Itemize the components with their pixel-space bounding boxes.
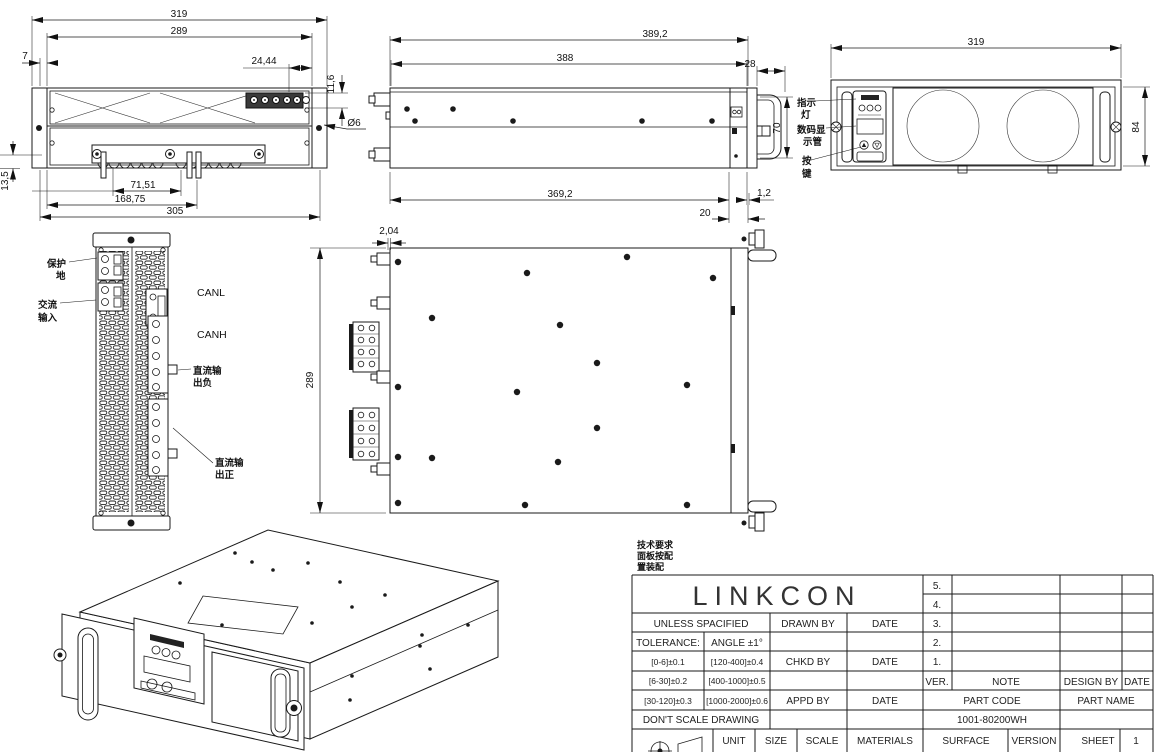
display-module — [853, 91, 886, 162]
dim-label: 389,2 — [642, 29, 667, 40]
dim-label: 13,5 — [0, 171, 11, 191]
tb-tolerance: TOLERANCE: — [636, 638, 700, 649]
ac-terminal-strip — [246, 93, 303, 108]
tb-size: SIZE — [765, 736, 788, 747]
iso-left-handle — [78, 628, 98, 720]
dim-label: 369,2 — [547, 189, 572, 200]
rear-panel-view: 319 289 7 24,44 11,6 Ø6 71,51 168,75 305… — [0, 9, 366, 221]
dim-label: 1,2 — [757, 188, 771, 199]
label-protective-earth: 地 — [56, 270, 66, 282]
ear-hole — [36, 125, 42, 131]
label-protective-earth: 保护 — [46, 258, 66, 270]
tb-dont-scale: DON'T SCALE DRAWING — [643, 715, 760, 726]
label-buttons: 按 — [802, 155, 812, 167]
label-canh: CANH — [197, 329, 227, 341]
tb-angle-tolerance: ANGLE ±1° — [711, 638, 763, 649]
tb-rev-5: 5. — [933, 581, 941, 592]
tb-drawn-by: DRAWN BY — [781, 619, 835, 630]
busbar-prong — [196, 152, 201, 178]
dim-label: 84 — [1131, 121, 1142, 133]
tb-tol-4: [120-400]±0.4 — [711, 657, 764, 667]
tb-rev-4: 4. — [933, 600, 941, 611]
terminal-block-1 — [349, 322, 379, 372]
ac-input-terminal — [98, 283, 123, 311]
tb-rev-3: 3. — [933, 619, 941, 630]
tb-version: VERSION — [1011, 736, 1056, 747]
projection-symbol — [648, 737, 702, 752]
label-canl: CANL — [197, 287, 225, 299]
dim-label: Ø6 — [347, 118, 361, 129]
tb-unless-specified: UNLESS SPACIFIED — [654, 619, 749, 630]
dc-negative-terminal — [148, 316, 168, 393]
dc-positive-terminal — [148, 399, 168, 476]
label-dc-positive: 直流输 — [215, 457, 244, 469]
dim-label: 7 — [22, 51, 28, 62]
tb-appd-by: APPD BY — [786, 696, 830, 707]
tb-ver: VER. — [925, 677, 948, 688]
busbar-prong — [187, 152, 192, 178]
dim-label: 388 — [557, 53, 574, 64]
dim-label: 24,44 — [251, 56, 276, 67]
label-indicator: 灯 — [801, 109, 811, 121]
label-display: 示管 — [803, 136, 823, 148]
thumbscrew-profile — [757, 126, 770, 136]
dim-label: 28 — [744, 59, 756, 70]
tb-part-code-value: 1001-80200WH — [957, 715, 1027, 726]
busbar-prong — [101, 152, 106, 178]
tb-part-name: PART NAME — [1077, 696, 1135, 707]
tb-date: DATE — [1124, 677, 1150, 688]
front-panel-edge — [747, 88, 757, 168]
earth-terminal — [98, 252, 123, 280]
top-front-panel — [731, 248, 748, 513]
tb-rev-1: 1. — [933, 657, 941, 668]
dim-label: 20 — [699, 208, 711, 219]
side-view: 389,2 388 28 70 369,2 1,2 20 — [369, 29, 793, 223]
tb-note: NOTE — [992, 677, 1020, 688]
dim-label: 289 — [171, 26, 188, 37]
label-dc-positive: 出正 — [215, 469, 235, 481]
title-block: LINKCON UNLESS SPACIFIED DRAWN BY DATE T… — [632, 575, 1153, 752]
tb-date: DATE — [872, 696, 898, 707]
tb-tol-6: [1000-2000]±0.6 — [706, 696, 768, 706]
tb-design-by: DESIGN BY — [1064, 677, 1119, 688]
dim-label: 168,75 — [115, 194, 146, 205]
top-body — [390, 248, 731, 513]
label-display: 数码显 — [796, 124, 826, 136]
isometric-view — [54, 530, 498, 750]
iso-right-handle — [271, 669, 290, 737]
tb-scale: SCALE — [806, 736, 839, 747]
dim-label: 11,6 — [326, 74, 337, 93]
note-line: 面板按配 — [637, 550, 673, 562]
note-line: 技术要求 — [637, 539, 674, 551]
front-panel-view: 319 84 指示 灯 数码显 示管 按 键 — [796, 37, 1150, 180]
tb-part-code: PART CODE — [963, 696, 1021, 707]
connector-side-view: 保护 地 交流 输入 CANL CANH 直流输 出负 直流输 出正 — [38, 233, 244, 530]
label-dc-negative: 直流输 — [193, 365, 222, 377]
note-line: 置装配 — [637, 561, 664, 573]
technical-notes: 技术要求 面板按配 置装配 — [637, 539, 674, 573]
label-dc-negative: 出负 — [193, 377, 213, 389]
tb-tol-1: [0-6]±0.1 — [651, 657, 685, 667]
tb-sheet-number: 1 — [1133, 736, 1139, 747]
terminal-block-2 — [349, 408, 379, 460]
tb-sheet: SHEET — [1081, 736, 1114, 747]
label-buttons: 键 — [801, 168, 812, 180]
dim-label: 2,04 — [379, 226, 399, 237]
label-ac-input: 输入 — [38, 312, 58, 324]
dim-label: 70 — [772, 122, 783, 134]
tb-tol-2: [6-30]±0.2 — [649, 676, 687, 686]
dim-label: 319 — [968, 37, 985, 48]
tb-date: DATE — [872, 619, 898, 630]
tb-tol-3: [30-120]±0.3 — [644, 696, 692, 706]
tb-chkd-by: CHKD BY — [786, 657, 831, 668]
top-view: 2,04 289 — [305, 226, 776, 531]
label-ac-input: 交流 — [38, 299, 58, 311]
dim-label: 71,51 — [130, 180, 155, 191]
drawing-sheet: 319 289 7 24,44 11,6 Ø6 71,51 168,75 305… — [0, 0, 1155, 752]
dim-label: 305 — [167, 206, 184, 217]
tb-tol-5: [400-1000]±0.5 — [708, 676, 765, 686]
tb-rev-2: 2. — [933, 638, 941, 649]
tb-date: DATE — [872, 657, 898, 668]
side-body — [390, 88, 747, 168]
engineering-drawing: 319 289 7 24,44 11,6 Ø6 71,51 168,75 305… — [0, 0, 1155, 752]
tb-unit: UNIT — [722, 736, 745, 747]
brand-logo: LINKCON — [692, 581, 861, 611]
label-indicator: 指示 — [797, 97, 817, 109]
dim-label: 319 — [171, 9, 188, 20]
ear-hole — [316, 125, 322, 131]
front-handle — [1100, 92, 1110, 162]
dim-label: 289 — [305, 371, 316, 388]
tb-materials: MATERIALS — [857, 736, 913, 747]
tb-surface: SURFACE — [942, 736, 990, 747]
